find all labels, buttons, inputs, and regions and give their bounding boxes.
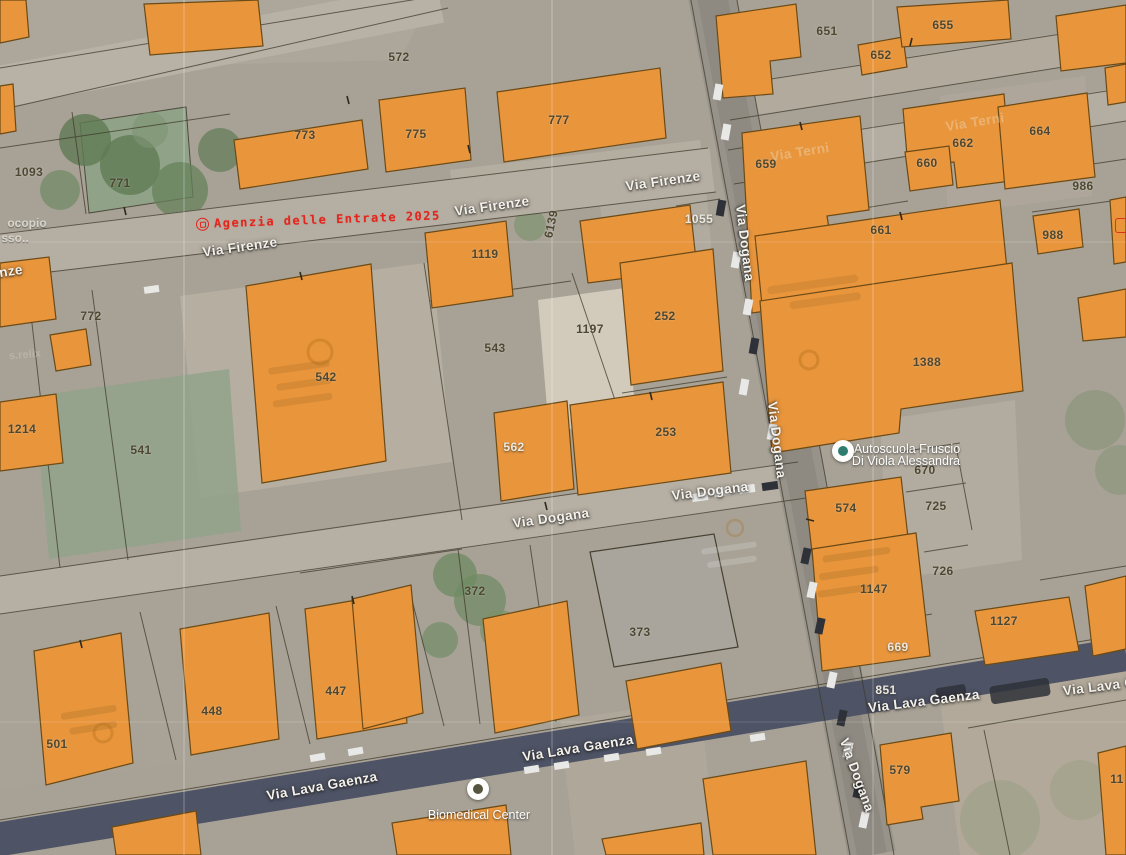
parcel-number-label: 501 xyxy=(46,737,67,751)
parcel-number-label: 777 xyxy=(548,113,569,127)
parcel-number-label: 11 xyxy=(1110,772,1124,786)
driving-school-pin-icon-core xyxy=(838,446,848,456)
parcel-number-label: 579 xyxy=(889,763,910,777)
street-name-label: Via Terni xyxy=(770,140,831,164)
parcel-number-label: 562 xyxy=(503,440,524,454)
parcel-number-label: 655 xyxy=(932,18,953,32)
parcel-number-label: 1197 xyxy=(576,322,604,336)
driving-school-pin-icon[interactable] xyxy=(832,440,854,462)
street-name-label: Via Dogana xyxy=(512,505,591,531)
street-name-label: Via Dogana xyxy=(733,204,757,283)
street-name-label: Via Firenze xyxy=(454,193,531,218)
parcel-number-label: 775 xyxy=(405,127,426,141)
parcel-number-label: 1119 xyxy=(472,247,499,261)
street-name-label: Via Firenze xyxy=(625,168,702,193)
street-name-label: Via Firenze xyxy=(202,234,279,259)
parcel-number-label: 772 xyxy=(80,309,101,323)
parcel-number-label: 373 xyxy=(629,625,650,639)
parcel-number-label: 574 xyxy=(835,501,856,515)
parcel-number-label: 851 xyxy=(875,683,896,697)
street-name-label: Via Dogana xyxy=(671,479,750,503)
street-name-label: Via Lava Gaenza xyxy=(265,769,378,803)
parcel-number-label: 986 xyxy=(1072,179,1093,193)
parcel-number-label: 661 xyxy=(870,223,891,237)
parcel-number-label: 773 xyxy=(294,128,315,142)
parcel-number-label: 771 xyxy=(109,176,130,190)
street-name-label: Via Dogana xyxy=(837,736,878,814)
parcel-number-label: 651 xyxy=(816,24,837,38)
biomedical-pin-icon[interactable] xyxy=(467,778,489,800)
poi-label[interactable]: ocopio xyxy=(7,216,46,230)
parcel-number-label: 448 xyxy=(201,704,222,718)
parcel-number-label: 543 xyxy=(484,341,505,355)
parcel-number-label: 447 xyxy=(325,684,346,698)
parcel-number-label: 252 xyxy=(654,309,675,323)
street-name-label: nze xyxy=(0,262,24,280)
poi-label[interactable]: Di Viola Alessandra xyxy=(852,454,960,468)
parcel-number-label: 1127 xyxy=(990,614,1018,628)
street-name-label: Via Terni xyxy=(945,110,1006,134)
poi-label[interactable]: s.relix xyxy=(9,348,42,363)
parcel-number-label: 1055 xyxy=(685,212,713,226)
parcel-number-label: 1147 xyxy=(860,582,888,596)
parcel-number-label: 662 xyxy=(952,136,973,150)
parcel-number-label: 572 xyxy=(388,50,409,64)
street-name-label: Via Dogana xyxy=(765,401,789,480)
poi-label[interactable]: Biomedical Center xyxy=(428,808,530,822)
parcel-number-label: 726 xyxy=(932,564,953,578)
parcel-number-label: 660 xyxy=(916,156,937,170)
street-name-label: Via Lava Gaenza xyxy=(521,732,634,764)
parcel-number-label: 1093 xyxy=(15,165,43,179)
map-viewport[interactable]: Agenzia delle Entrate 2025 5721093771773… xyxy=(0,0,1126,855)
parcel-number-label: 253 xyxy=(655,425,676,439)
biomedical-pin-icon-core xyxy=(473,784,483,794)
parcel-number-label: 669 xyxy=(887,640,908,654)
parcel-number-label: 664 xyxy=(1029,124,1050,138)
map-labels-layer: 5721093771773775777651652655659660661662… xyxy=(0,0,1126,855)
parcel-number-label: 372 xyxy=(464,584,485,598)
parcel-number-label: 988 xyxy=(1042,228,1063,242)
parcel-number-label: 542 xyxy=(315,370,336,384)
parcel-number-label: 652 xyxy=(870,48,891,62)
parcel-number-label: 6139 xyxy=(541,209,561,240)
parcel-number-label: 541 xyxy=(130,443,151,457)
poi-label[interactable]: sso.. xyxy=(1,231,28,245)
parcel-number-label: 1388 xyxy=(913,355,941,369)
parcel-number-label: 725 xyxy=(925,499,946,513)
parcel-number-label: 1214 xyxy=(8,422,36,436)
street-name-label: Via Lava Ga xyxy=(1062,674,1126,699)
